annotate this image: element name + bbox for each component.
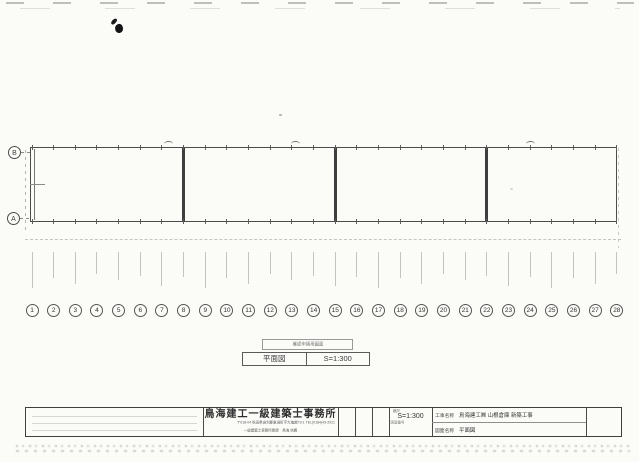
column-tick bbox=[421, 252, 422, 284]
edge-tick bbox=[291, 145, 292, 150]
scale-label: 縮尺 bbox=[391, 408, 430, 413]
ghost-text-band bbox=[16, 443, 630, 454]
edge-tick bbox=[291, 219, 292, 224]
edge-tick bbox=[118, 145, 119, 150]
caption-note-box: 確認申請用図面 bbox=[262, 339, 353, 350]
edge-tick bbox=[486, 145, 487, 150]
edge-tick bbox=[270, 145, 271, 150]
edge-tick bbox=[313, 145, 314, 150]
column-tick bbox=[378, 252, 379, 288]
column-tick bbox=[313, 252, 314, 276]
column-tick bbox=[96, 252, 97, 274]
column-tick bbox=[486, 252, 487, 276]
edge-tick bbox=[248, 219, 249, 224]
edge-tick bbox=[53, 145, 54, 150]
title-block-divider bbox=[372, 408, 373, 436]
grid-bubble: 18 bbox=[394, 304, 407, 317]
grid-bubble: 6 bbox=[134, 304, 147, 317]
edge-tick bbox=[595, 145, 596, 150]
edge-tick bbox=[75, 219, 76, 224]
edge-tick bbox=[140, 145, 141, 150]
ghost-row-line bbox=[32, 416, 197, 417]
edge-tick bbox=[248, 145, 249, 150]
edge-tick bbox=[465, 145, 466, 150]
grid-bubble: 7 bbox=[155, 304, 168, 317]
edge-tick bbox=[465, 219, 466, 224]
grid-leader-line bbox=[25, 150, 26, 230]
drawing-name-label: 図面名称 bbox=[435, 427, 454, 434]
edge-tick bbox=[313, 219, 314, 224]
edge-tick bbox=[421, 145, 422, 150]
wall-tick bbox=[30, 184, 45, 185]
drawing-name-row: 図面名称 平面図 bbox=[432, 423, 586, 437]
grid-bubble: 20 bbox=[437, 304, 450, 317]
column-tick bbox=[530, 252, 531, 277]
edge-tick bbox=[486, 219, 487, 224]
ghost-row-line bbox=[32, 430, 197, 431]
column-tick bbox=[335, 252, 336, 286]
edge-tick bbox=[508, 145, 509, 150]
edge-tick bbox=[75, 145, 76, 150]
edge-tick bbox=[32, 219, 33, 224]
grid-bubble: 10 bbox=[220, 304, 233, 317]
grid-row-label: A bbox=[11, 216, 16, 223]
caption-note-text: 確認申請用図面 bbox=[292, 340, 323, 349]
partition-wall bbox=[182, 148, 185, 221]
column-tick bbox=[183, 252, 184, 277]
ink-blot-mark bbox=[112, 18, 126, 34]
edge-tick bbox=[335, 219, 336, 224]
grid-bubble: 4 bbox=[90, 304, 103, 317]
grid-bubble: 17 bbox=[372, 304, 385, 317]
drawing-name-value: 平面図 bbox=[459, 426, 475, 433]
grid-row-bubble-a: A bbox=[7, 212, 20, 225]
edge-tick bbox=[378, 145, 379, 150]
edge-tick bbox=[443, 145, 444, 150]
grid-bubble: 8 bbox=[177, 304, 190, 317]
scan-speck bbox=[279, 114, 282, 116]
firm-name: 鳥海建工一級建築士事務所 bbox=[203, 408, 338, 421]
edge-tick bbox=[595, 219, 596, 224]
grid-bubble: 22 bbox=[480, 304, 493, 317]
grid-bubble: 16 bbox=[350, 304, 363, 317]
project-cell: 工事名称 鳥海建工㈱ 山根倉庫 新築工事 図面名称 平面図 bbox=[432, 408, 586, 436]
firm-cell: 鳥海建工一級建築士事務所 〒018-04 秋田県由利郡象潟町字大塩越73-1 T… bbox=[203, 408, 338, 436]
column-tick bbox=[53, 252, 54, 278]
grid-bubble: 15 bbox=[329, 304, 342, 317]
grid-bubble: 28 bbox=[610, 304, 623, 317]
column-tick bbox=[508, 252, 509, 286]
edge-tick bbox=[118, 219, 119, 224]
column-tick bbox=[551, 252, 552, 288]
column-tick bbox=[616, 252, 617, 274]
title-block-divider bbox=[355, 408, 356, 436]
edge-tick bbox=[551, 145, 552, 150]
grid-row-bubble-b: B bbox=[8, 146, 21, 159]
edge-tick bbox=[616, 219, 617, 224]
project-name-value: 鳥海建工㈱ 山根倉庫 新築工事 bbox=[459, 411, 533, 418]
column-tick bbox=[248, 252, 249, 284]
edge-tick bbox=[573, 219, 574, 224]
scale-sub-label: 図面番号 bbox=[389, 421, 411, 425]
column-tick bbox=[140, 252, 141, 276]
grid-bubble: 27 bbox=[589, 304, 602, 317]
edge-tick bbox=[356, 145, 357, 150]
scan-edge-artifact-faint bbox=[20, 8, 620, 9]
grid-bubble: 5 bbox=[112, 304, 125, 317]
edge-tick bbox=[32, 145, 33, 150]
building-outline bbox=[30, 147, 617, 222]
project-row: 工事名称 鳥海建工㈱ 山根倉庫 新築工事 bbox=[432, 408, 586, 423]
column-tick bbox=[356, 252, 357, 277]
edge-tick bbox=[183, 219, 184, 224]
grid-bubble: 24 bbox=[524, 304, 537, 317]
grid-bubble: 12 bbox=[264, 304, 277, 317]
scale-cell: 縮尺 S=1:300 図面番号 bbox=[389, 408, 432, 436]
project-name-label: 工事名称 bbox=[435, 412, 454, 419]
title-block: 鳥海建工一級建築士事務所 〒018-04 秋田県由利郡象潟町字大塩越73-1 T… bbox=[25, 407, 622, 437]
edge-tick bbox=[335, 145, 336, 150]
column-tick bbox=[205, 252, 206, 288]
grid-bubble: 21 bbox=[459, 304, 472, 317]
grid-bubble: 3 bbox=[69, 304, 82, 317]
drawing-title-label: 平面図 bbox=[243, 353, 307, 365]
edge-tick bbox=[530, 145, 531, 150]
roof-vent-mark bbox=[164, 141, 173, 147]
edge-tick bbox=[53, 219, 54, 224]
drawing-scale-label: S=1:300 bbox=[307, 353, 370, 365]
partition-wall bbox=[334, 148, 337, 221]
column-tick bbox=[465, 252, 466, 280]
column-tick bbox=[161, 252, 162, 286]
grid-bubble: 1 bbox=[26, 304, 39, 317]
partition-wall bbox=[485, 148, 488, 221]
firm-address: 〒018-04 秋田県由利郡象潟町字大塩越73-1 TEL(0184)43-20… bbox=[237, 421, 305, 425]
grid-bubble: 2 bbox=[47, 304, 60, 317]
edge-tick bbox=[96, 145, 97, 150]
edge-tick bbox=[205, 145, 206, 150]
grid-bubble: 26 bbox=[567, 304, 580, 317]
edge-tick bbox=[226, 145, 227, 150]
column-tick bbox=[291, 252, 292, 280]
scan-edge-artifact bbox=[6, 2, 634, 4]
column-tick bbox=[573, 252, 574, 278]
edge-tick bbox=[443, 219, 444, 224]
column-tick bbox=[75, 252, 76, 284]
grid-bubble: 9 bbox=[199, 304, 212, 317]
edge-tick bbox=[140, 219, 141, 224]
column-tick bbox=[595, 252, 596, 284]
grid-bubble: 13 bbox=[285, 304, 298, 317]
grid-bubble: 19 bbox=[415, 304, 428, 317]
edge-tick bbox=[356, 219, 357, 224]
edge-tick bbox=[183, 145, 184, 150]
grid-bubble: 14 bbox=[307, 304, 320, 317]
title-block-divider bbox=[338, 408, 339, 436]
dashed-reference-line bbox=[25, 239, 621, 240]
column-tick bbox=[32, 252, 33, 288]
scale-value: S=1:300 bbox=[389, 413, 432, 421]
column-tick bbox=[118, 252, 119, 280]
edge-tick bbox=[508, 219, 509, 224]
column-tick bbox=[400, 252, 401, 278]
column-tick bbox=[443, 252, 444, 274]
grid-leader-line bbox=[618, 148, 619, 248]
column-tick bbox=[226, 252, 227, 278]
firm-license: 一級建築士事務所登録 鳥海 信義 bbox=[237, 429, 305, 433]
drawing-title-box: 平面図 S=1:300 bbox=[242, 352, 370, 366]
edge-tick bbox=[573, 145, 574, 150]
edge-tick bbox=[421, 219, 422, 224]
edge-tick bbox=[226, 219, 227, 224]
edge-tick bbox=[551, 219, 552, 224]
title-block-divider bbox=[586, 408, 587, 436]
edge-tick bbox=[161, 219, 162, 224]
edge-tick bbox=[530, 219, 531, 224]
edge-tick bbox=[161, 145, 162, 150]
edge-tick bbox=[205, 219, 206, 224]
grid-bubble: 23 bbox=[502, 304, 515, 317]
grid-bubble: 25 bbox=[545, 304, 558, 317]
edge-tick bbox=[400, 145, 401, 150]
edge-tick bbox=[270, 219, 271, 224]
edge-tick bbox=[400, 219, 401, 224]
edge-tick bbox=[96, 219, 97, 224]
ghost-row-line bbox=[32, 423, 197, 424]
grid-row-label: B bbox=[12, 150, 17, 157]
edge-tick bbox=[616, 145, 617, 150]
scanned-drawing-page: B A 123456789101112131415161718192021222… bbox=[0, 0, 639, 462]
column-tick bbox=[270, 252, 271, 274]
grid-bubble: 11 bbox=[242, 304, 255, 317]
edge-tick bbox=[378, 219, 379, 224]
